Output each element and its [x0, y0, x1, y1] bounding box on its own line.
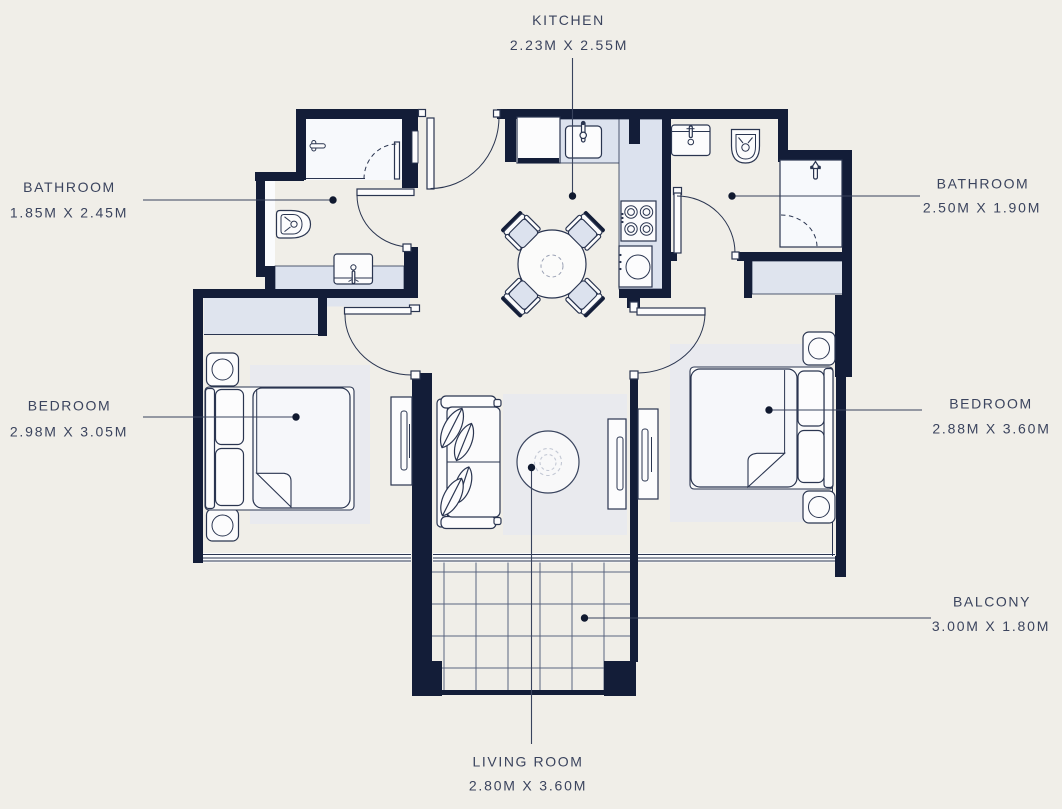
svg-text:2.23M X 2.55M: 2.23M X 2.55M	[510, 37, 628, 53]
svg-text:2.50M X 1.90M: 2.50M X 1.90M	[923, 200, 1041, 216]
svg-text:BATHROOM: BATHROOM	[23, 179, 116, 195]
svg-text:BALCONY: BALCONY	[953, 594, 1031, 610]
svg-text:KITCHEN: KITCHEN	[532, 12, 605, 28]
svg-text:BEDROOM: BEDROOM	[949, 396, 1033, 412]
svg-text:BEDROOM: BEDROOM	[28, 398, 112, 414]
svg-text:2.88M X 3.60M: 2.88M X 3.60M	[932, 421, 1050, 437]
svg-text:2.80M X 3.60M: 2.80M X 3.60M	[469, 778, 587, 794]
svg-text:BATHROOM: BATHROOM	[937, 176, 1030, 192]
svg-text:1.85M X 2.45M: 1.85M X 2.45M	[10, 205, 128, 221]
svg-text:LIVING ROOM: LIVING ROOM	[473, 754, 584, 770]
svg-text:3.00M X 1.80M: 3.00M X 1.80M	[932, 618, 1050, 634]
svg-text:2.98M X 3.05M: 2.98M X 3.05M	[10, 424, 128, 440]
